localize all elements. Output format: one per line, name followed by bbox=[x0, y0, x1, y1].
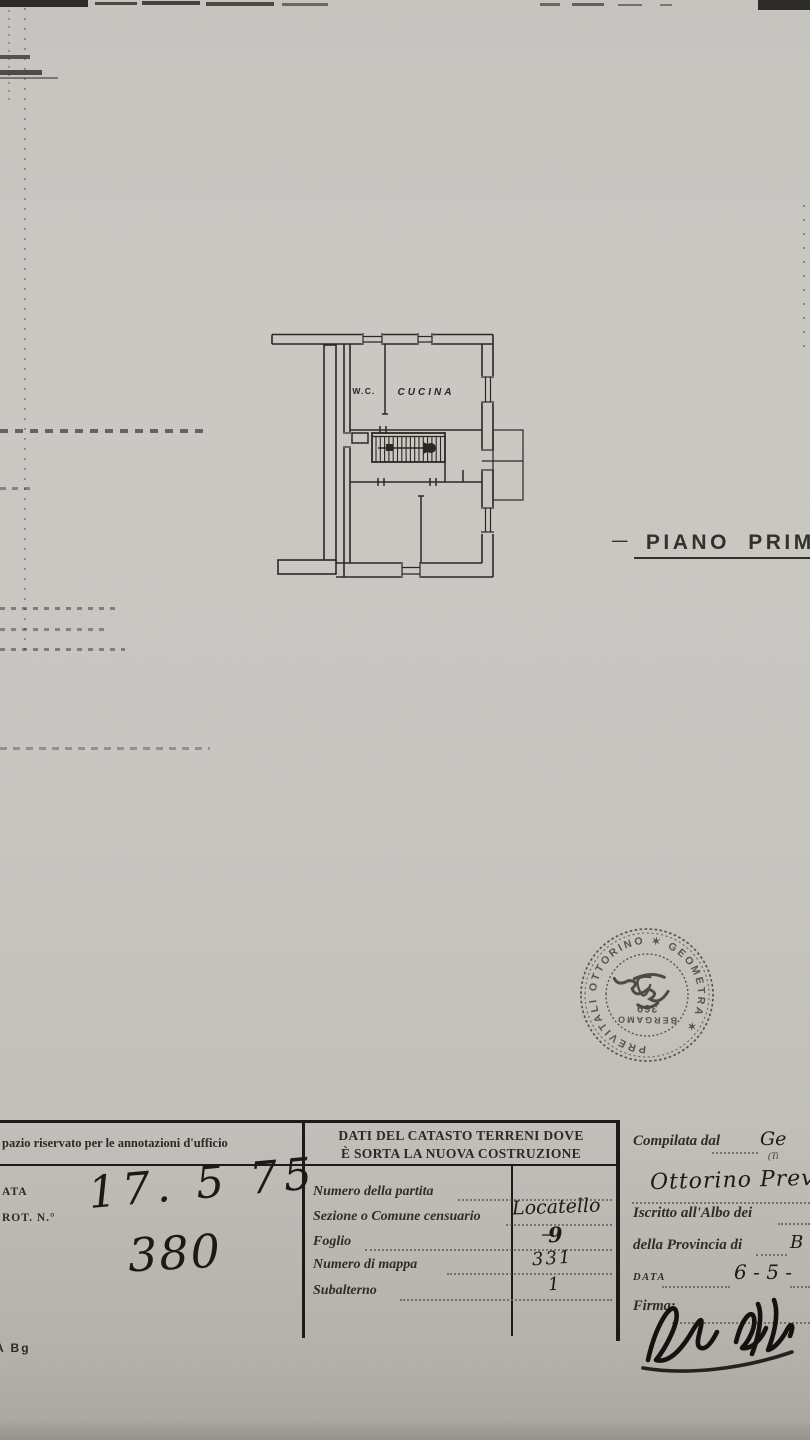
titolo-hint: (Ti bbox=[768, 1152, 779, 1162]
label-data-cut: ATA bbox=[2, 1186, 28, 1198]
surveyor-stamp: PREVITALI OTTORINO ✶ GEOMETRA ✶ BERGAMO … bbox=[574, 921, 720, 1069]
plan-staircase bbox=[372, 433, 445, 482]
scan-artifact bbox=[540, 3, 560, 6]
scan-artifact-dashes bbox=[0, 747, 210, 750]
dotted-leader bbox=[632, 1200, 810, 1204]
scanned-cadastral-document: { "plan": { "label_wc": "W.C.", "label_c… bbox=[0, 0, 810, 1440]
field-value-subalterno: 1 bbox=[547, 1274, 560, 1296]
form-right-header-line1: DATI DEL CATASTO TERRENI DOVE bbox=[306, 1128, 616, 1144]
scan-artifact bbox=[142, 1, 200, 5]
field-value-sezione: Locatello bbox=[512, 1194, 601, 1219]
dotted-leader bbox=[365, 1247, 612, 1251]
scan-artifact bbox=[282, 3, 328, 6]
field-label-sezione: Sezione o Comune censuario bbox=[313, 1209, 481, 1225]
scan-artifact-dashes bbox=[0, 429, 205, 433]
plan-caption: ‒‒ PIANO PRIMO bbox=[612, 531, 810, 555]
field-value-foglio: 9 bbox=[547, 1222, 563, 1248]
scan-artifact-dotted-column bbox=[24, 8, 26, 658]
field-label-foglio: Foglio bbox=[313, 1234, 351, 1250]
floor-plan-drawing: W.C. CUCINA bbox=[260, 315, 545, 610]
compilata-value: Ge bbox=[760, 1128, 786, 1150]
field-label-mappa: Numero di mappa bbox=[313, 1257, 417, 1273]
provincia-label: della Provincia di bbox=[633, 1237, 742, 1254]
scan-artifact-dashes bbox=[0, 648, 125, 651]
stamp-city: BERGAMO bbox=[616, 1014, 677, 1025]
scan-artifact bbox=[618, 4, 642, 6]
scan-artifact bbox=[95, 2, 137, 5]
handwritten-protocol-number: 380 bbox=[127, 1224, 224, 1283]
plan-partitions bbox=[350, 344, 482, 563]
field-label-subalterno: Subalterno bbox=[313, 1283, 377, 1299]
form-right-header-line2: È SORTA LA NUOVA COSTRUZIONE bbox=[306, 1146, 616, 1162]
caption-underline bbox=[634, 557, 810, 559]
scan-artifact bbox=[660, 4, 672, 6]
scan-artifact-dashes bbox=[0, 607, 120, 610]
svg-text:PREVITALI OTTORINO ✶ GEOMET: PREVITALI OTTORINO ✶ GEOMETRA ✶ bbox=[586, 934, 708, 1056]
form-vertical-divider-inner bbox=[511, 1166, 513, 1336]
compilata-label: Compilata dal bbox=[633, 1133, 720, 1150]
caption-text: PIANO PRIMO bbox=[646, 531, 810, 554]
room-label-cucina: CUCINA bbox=[398, 387, 455, 398]
form-left-header: pazio riservato per le annotazioni d'uff… bbox=[2, 1136, 302, 1151]
label-prot-cut: ROT. N.° bbox=[2, 1212, 56, 1224]
footer-note: A Bg bbox=[0, 1341, 31, 1355]
scan-artifact bbox=[758, 0, 810, 10]
dotted-leader bbox=[400, 1297, 612, 1301]
scan-artifact-dotted-column bbox=[8, 10, 10, 105]
form-top-border bbox=[0, 1120, 620, 1123]
caption-dash: ‒‒ bbox=[612, 532, 628, 548]
scan-artifact bbox=[206, 2, 274, 6]
scan-artifact-dashes bbox=[0, 628, 110, 631]
dotted-leader bbox=[756, 1252, 787, 1256]
scan-artifact bbox=[0, 70, 42, 75]
scan-artifact bbox=[0, 0, 88, 7]
provincia-value: B bbox=[790, 1232, 803, 1253]
iscritto-label: Iscritto all'Albo dei bbox=[633, 1205, 752, 1222]
form-right-border bbox=[616, 1120, 620, 1341]
scan-artifact-dashes bbox=[0, 487, 36, 490]
room-label-wc: W.C. bbox=[352, 386, 375, 396]
scan-artifact bbox=[572, 3, 604, 6]
handwritten-date: 17. 5 75 bbox=[86, 1148, 320, 1219]
field-value-mappa: 331 bbox=[531, 1247, 573, 1271]
compiler-name-value: Ottorino Prev bbox=[650, 1166, 810, 1195]
stamp-ring-text: PREVITALI OTTORINO ✶ GEOMETRA ✶ bbox=[586, 934, 708, 1056]
dotted-leader bbox=[778, 1221, 810, 1225]
field-label-partita: Numero della partita bbox=[313, 1184, 434, 1200]
signature bbox=[640, 1278, 810, 1373]
dotted-leader bbox=[712, 1150, 758, 1154]
dotted-leader bbox=[447, 1271, 612, 1275]
scan-artifact-dotted-column bbox=[803, 205, 805, 355]
paper-bottom-edge bbox=[0, 1418, 810, 1440]
